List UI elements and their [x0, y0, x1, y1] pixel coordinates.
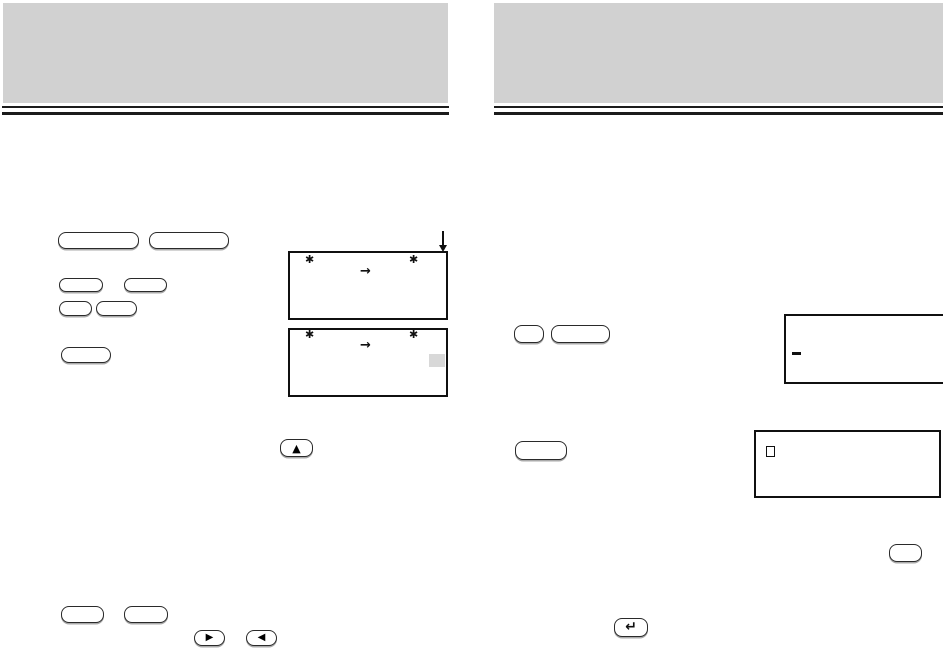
blank-key-illustration: [61, 347, 111, 363]
blank-key-illustration: [124, 278, 167, 292]
blank-key-illustration: [58, 232, 139, 249]
blank-key-illustration: [61, 606, 104, 623]
cursor-up-key-illustration: ▲: [280, 439, 313, 457]
asterisk-icon: ✱: [409, 254, 418, 265]
right-page-header-banner: [494, 3, 943, 103]
lcd-display-top-right: [784, 314, 943, 384]
cursor-open-square: [766, 446, 775, 457]
lcd-display-bottom-right: [754, 430, 941, 498]
blank-key-illustration: [889, 544, 922, 562]
blank-key-illustration: [59, 278, 103, 292]
cursor-dash: [792, 352, 801, 355]
asterisk-icon: ✱: [305, 329, 314, 340]
blank-key-illustration: [96, 301, 137, 316]
up-triangle-icon: ▲: [292, 443, 300, 454]
scanned-manual-spread: ✱ → ✱ ✱ → ✱ ▲ ▶ ◀ ↵: [0, 0, 943, 648]
cursor-right-key-illustration: ▶: [194, 630, 225, 646]
asterisk-icon: ✱: [305, 254, 314, 265]
blank-key-illustration: [551, 325, 610, 343]
blank-key-illustration: [59, 301, 92, 316]
right-arrow-icon: →: [360, 339, 371, 352]
blank-key-illustration: [124, 606, 168, 623]
enter-key-illustration: ↵: [614, 618, 648, 637]
left-page-header-banner: [3, 3, 448, 103]
left-page-header-rule-thin: [2, 106, 449, 108]
blank-key-illustration: [515, 441, 567, 460]
right-arrow-icon: →: [360, 265, 371, 278]
highlight-square: [429, 354, 445, 367]
enter-arrow-icon: ↵: [625, 620, 637, 634]
lcd-display-top: ✱ → ✱: [288, 251, 448, 320]
right-triangle-icon: ▶: [206, 633, 214, 643]
left-page-header-rule-thick: [2, 112, 449, 115]
right-page-header-rule-thin: [494, 106, 943, 108]
blank-key-illustration: [149, 232, 229, 249]
cursor-left-key-illustration: ◀: [246, 630, 277, 646]
blank-key-illustration: [514, 325, 544, 343]
lcd-display-bottom: ✱ → ✱: [288, 328, 448, 397]
left-triangle-icon: ◀: [258, 633, 266, 643]
right-page-header-rule-thick: [494, 112, 943, 115]
asterisk-icon: ✱: [409, 329, 418, 340]
